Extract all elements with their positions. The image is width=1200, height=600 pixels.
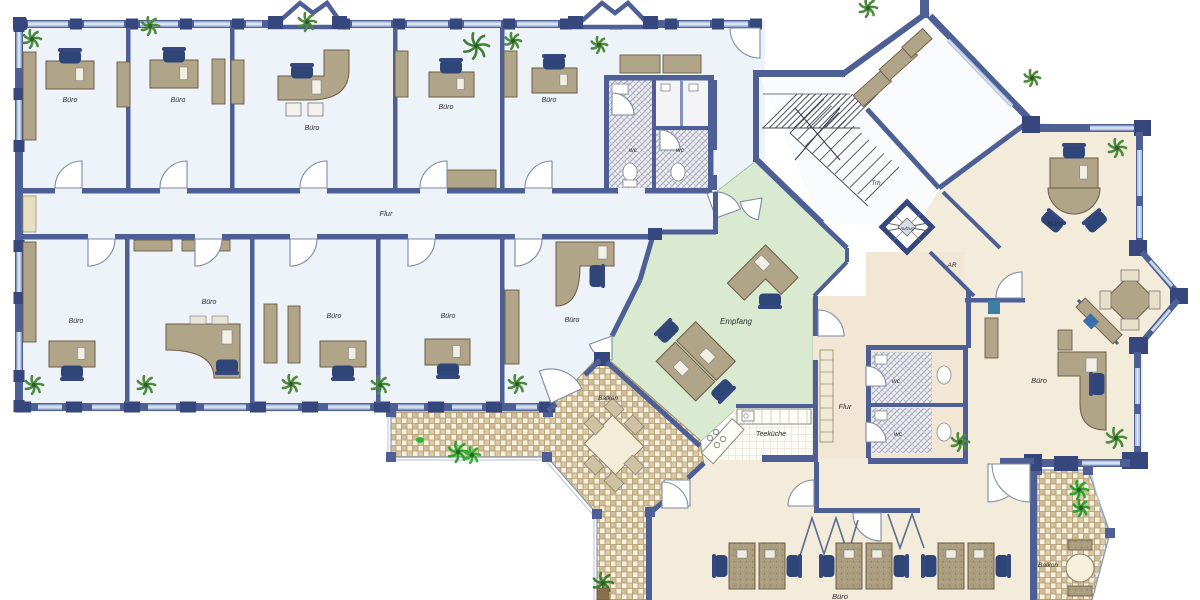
svg-text:wc: wc <box>676 147 685 154</box>
svg-text:Flur: Flur <box>380 209 393 218</box>
svg-text:Büro: Büro <box>202 299 217 306</box>
svg-text:Empfang: Empfang <box>720 317 753 326</box>
svg-text:Büro: Büro <box>327 313 342 320</box>
svg-text:Büro: Büro <box>832 592 848 600</box>
svg-text:AR: AR <box>946 262 956 269</box>
svg-text:Flur: Flur <box>839 402 852 411</box>
svg-text:Büro: Büro <box>542 97 557 104</box>
svg-text:Büro: Büro <box>69 318 84 325</box>
svg-text:wc: wc <box>892 378 901 385</box>
svg-text:Büro: Büro <box>305 125 320 132</box>
svg-text:Aufzug: Aufzug <box>899 226 915 231</box>
svg-text:Büro: Büro <box>1031 376 1047 385</box>
svg-text:Büro: Büro <box>441 313 456 320</box>
svg-text:Trh: Trh <box>871 180 881 187</box>
svg-text:Büro: Büro <box>63 97 78 104</box>
svg-text:wc: wc <box>894 431 903 438</box>
svg-text:Balkon: Balkon <box>1038 562 1058 569</box>
svg-text:Teeküche: Teeküche <box>756 431 786 438</box>
svg-text:Balkon: Balkon <box>598 395 618 402</box>
svg-text:Büro: Büro <box>565 317 580 324</box>
svg-text:Büro: Büro <box>171 97 186 104</box>
svg-text:wc: wc <box>629 147 638 154</box>
svg-text:Büro: Büro <box>439 104 454 111</box>
svg-text:Büro: Büro <box>1047 219 1063 228</box>
